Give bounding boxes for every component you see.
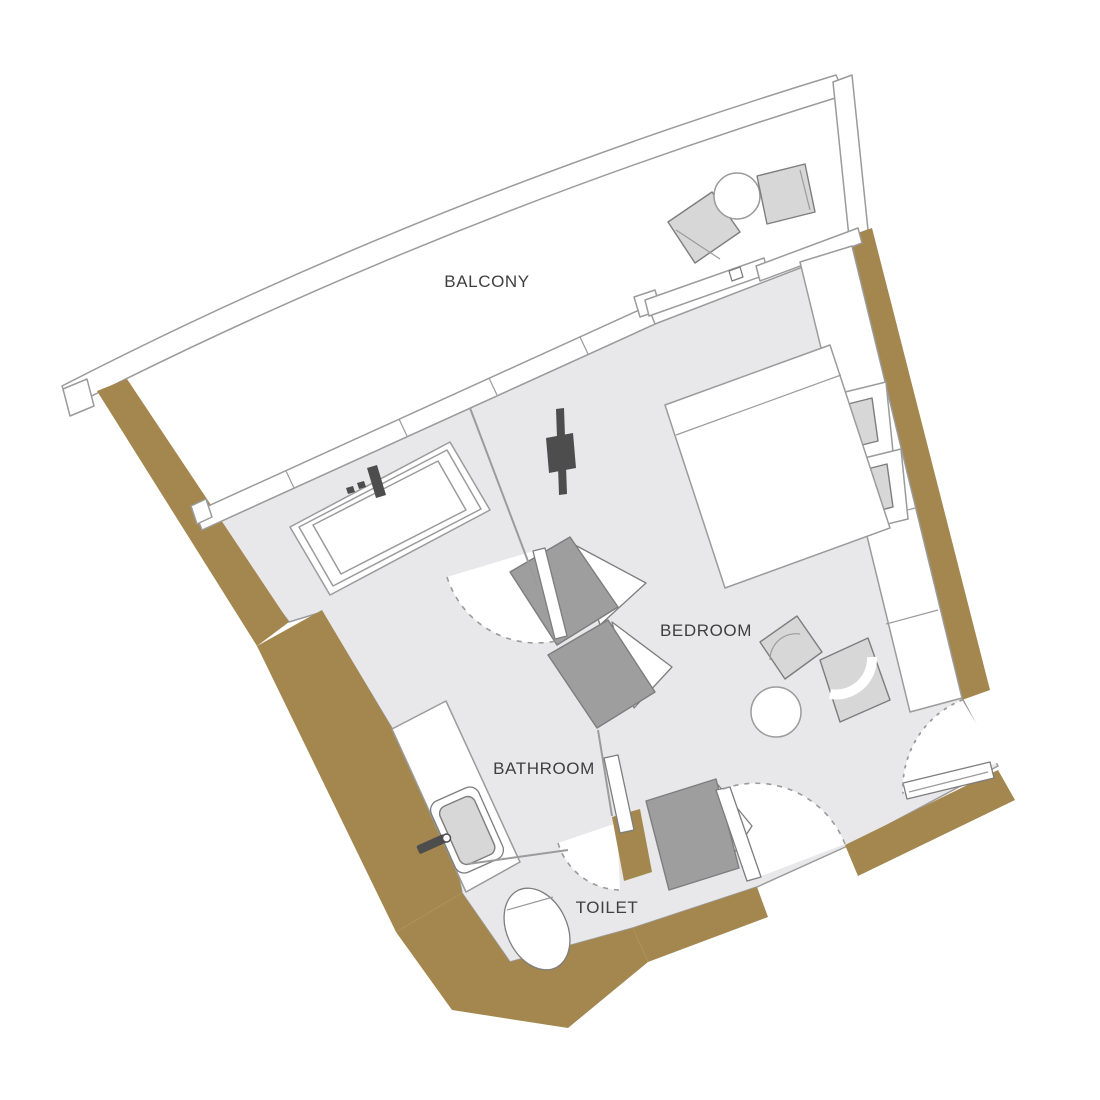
railing-side-rail <box>833 75 868 237</box>
toilet-label: TOILET <box>576 898 639 917</box>
balcony-furniture <box>668 164 815 263</box>
floor-plan-canvas: BALCONY BEDROOM BATHROOM TOILET <box>0 0 1100 1100</box>
bedroom-label: BEDROOM <box>660 621 752 640</box>
balcony-table <box>714 173 760 219</box>
balcony-label: BALCONY <box>444 272 529 291</box>
side-table <box>751 687 801 737</box>
floor-plan: BALCONY BEDROOM BATHROOM TOILET <box>0 0 1100 1100</box>
bathroom-label: BATHROOM <box>493 759 595 778</box>
